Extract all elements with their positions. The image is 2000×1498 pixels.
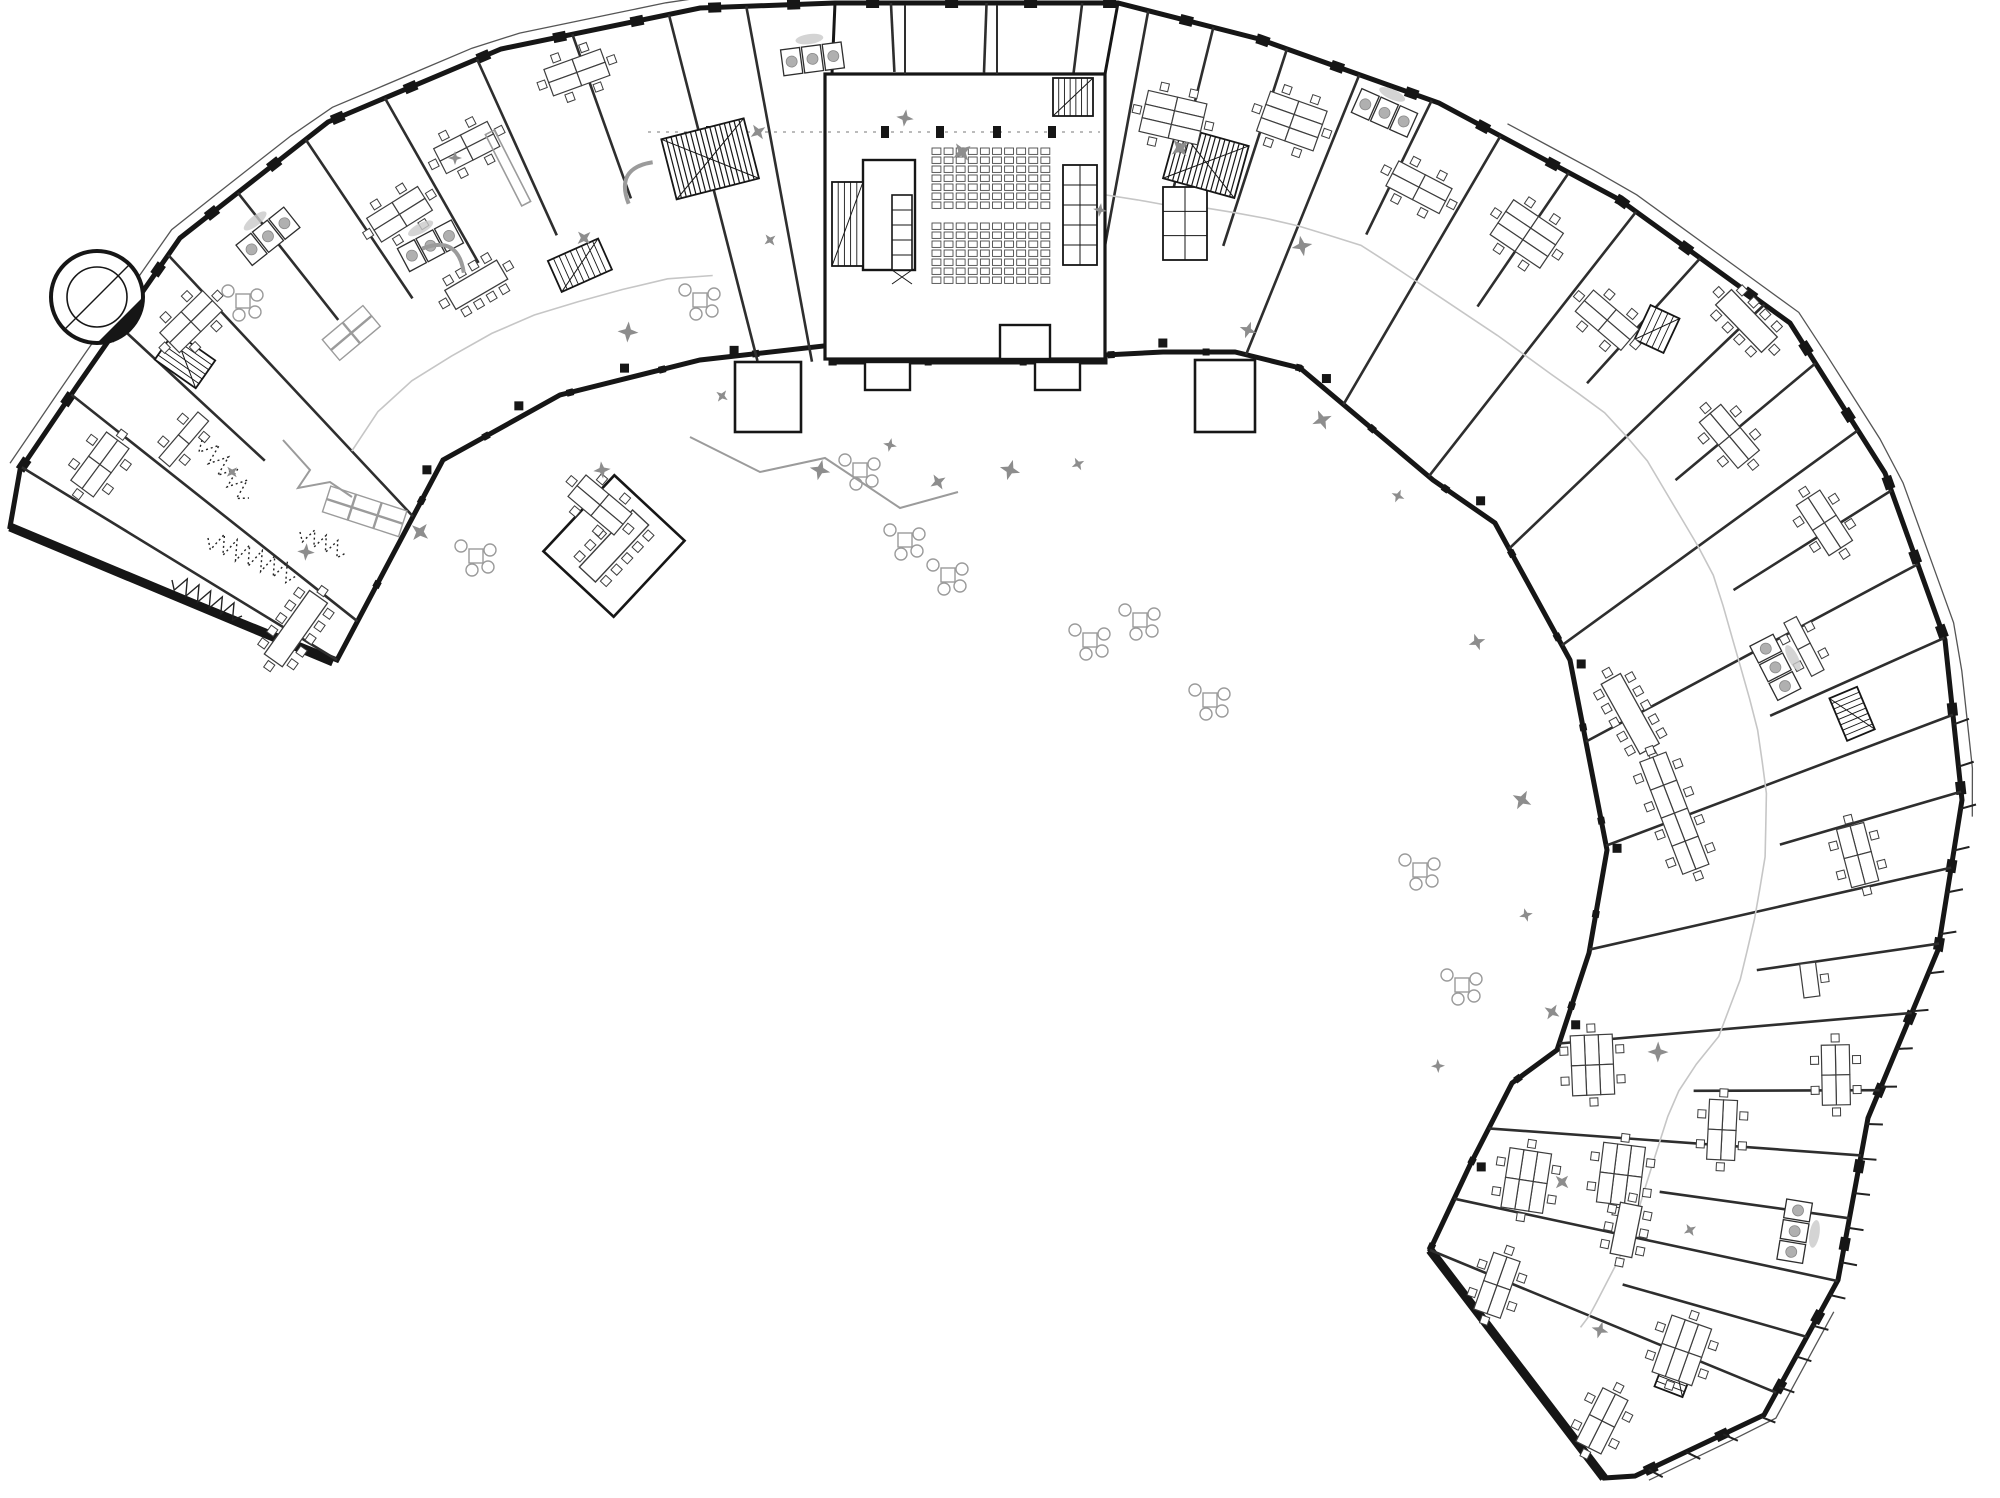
lounge-chairs [455, 540, 496, 576]
auditorium-seat [932, 232, 941, 238]
plant-icon [1517, 906, 1534, 923]
kitchen-unit [892, 195, 912, 284]
chair [1628, 1193, 1637, 1202]
sunshade-fin [1848, 1228, 1864, 1230]
auditorium-seat [968, 277, 977, 283]
auditorium-seat [1005, 184, 1014, 190]
column [422, 465, 431, 474]
chair [1587, 1182, 1596, 1191]
desk [1722, 1100, 1737, 1131]
auditorium-seat [1017, 223, 1026, 229]
auditorium-seat [1041, 268, 1050, 274]
auditorium-seat [1041, 241, 1050, 247]
auditorium-seat [968, 223, 977, 229]
auditorium-seat [1005, 232, 1014, 238]
auditorium-seat [944, 202, 953, 208]
floor-plan-page [0, 0, 2000, 1498]
auditorium-seat [993, 175, 1002, 181]
auditorium-seat [1017, 157, 1026, 163]
chair [1561, 1077, 1569, 1085]
auditorium-seat [968, 157, 977, 163]
auditorium-seat [944, 184, 953, 190]
round-chair [1080, 648, 1092, 660]
annex-stair-room [735, 362, 801, 432]
auditorium-seat [1005, 148, 1014, 154]
round-chair [1119, 604, 1131, 616]
auditorium-seat [1041, 259, 1050, 265]
auditorium-seat [956, 241, 965, 247]
auditorium-seat [956, 184, 965, 190]
auditorium-seat [1029, 184, 1038, 190]
auditorium-seat [932, 193, 941, 199]
column [1322, 374, 1331, 383]
round-chair [482, 561, 494, 573]
auditorium-seat [993, 277, 1002, 283]
sunshade-fin [1686, 1452, 1700, 1459]
plant-icon [1508, 786, 1536, 814]
auditorium-seat [1029, 223, 1038, 229]
auditorium-seat [944, 241, 953, 247]
round-chair [1452, 993, 1464, 1005]
auditorium-seat [956, 268, 965, 274]
chair [1204, 121, 1214, 131]
round-chair [1426, 875, 1438, 887]
chair [1547, 1195, 1556, 1204]
chair [1716, 1163, 1724, 1171]
desk [1721, 1130, 1736, 1161]
desk [1822, 1075, 1837, 1105]
auditorium-seat [1029, 250, 1038, 256]
auditorium-seat [1017, 184, 1026, 190]
auditorium-seat [1017, 241, 1026, 247]
auditorium-seat [1041, 232, 1050, 238]
chair [1642, 1188, 1651, 1197]
chair [1189, 89, 1199, 99]
auditorium-seat [1017, 202, 1026, 208]
auditorium-seat [1005, 193, 1014, 199]
desk [1707, 1129, 1722, 1160]
auditorium-seat [1041, 166, 1050, 172]
auditorium-seat [1029, 277, 1038, 283]
kitchen-counter [892, 195, 912, 270]
auditorium-seat [1029, 157, 1038, 163]
chair [1698, 1110, 1706, 1118]
auditorium-seat [932, 277, 941, 283]
column [1476, 496, 1485, 505]
sunshade-fin [1897, 1048, 1913, 1049]
round-chair [1146, 625, 1158, 637]
column [1577, 659, 1586, 668]
round-chair [1189, 684, 1201, 696]
column [1571, 1020, 1580, 1029]
desk [1835, 1045, 1850, 1075]
auditorium-seat [944, 250, 953, 256]
desk [1708, 1099, 1723, 1130]
lounge-chairs [1119, 604, 1160, 640]
chair [1621, 1133, 1630, 1142]
auditorium-seat [993, 166, 1002, 172]
chair [1811, 1086, 1819, 1094]
chair [566, 476, 577, 487]
auditorium-seat [944, 232, 953, 238]
column [1477, 1162, 1486, 1171]
desk [1570, 1035, 1585, 1066]
auditorium-seat [1029, 175, 1038, 181]
lounge-chairs [1441, 969, 1482, 1005]
round-chair [954, 580, 966, 592]
auditorium-seat [944, 193, 953, 199]
auditorium-seat [1005, 241, 1014, 247]
inner-mullions [337, 345, 1607, 1250]
desk [1598, 1034, 1613, 1065]
desk [1821, 1045, 1836, 1075]
auditorium-seat [956, 157, 965, 163]
auditorium-seat [932, 259, 941, 265]
chair [1492, 1187, 1501, 1196]
chair [1639, 1229, 1648, 1238]
column [514, 401, 523, 410]
auditorium-seat [993, 184, 1002, 190]
round-chair [911, 545, 923, 557]
round-chair [866, 475, 878, 487]
sunshade-fin [1854, 1193, 1870, 1195]
round-chair [455, 540, 467, 552]
staircase [1053, 78, 1093, 116]
auditorium-seat [956, 250, 965, 256]
chair [1831, 1034, 1839, 1042]
chair [1720, 1089, 1728, 1097]
round-chair [884, 524, 896, 536]
auditorium-seat [944, 259, 953, 265]
round-chair [1148, 608, 1160, 620]
chair [1560, 1047, 1568, 1055]
side-table [1133, 613, 1147, 627]
round-chair [839, 454, 851, 466]
auditorium-seat [980, 223, 989, 229]
round-chair [484, 544, 496, 556]
guide-tick [993, 126, 1001, 138]
auditorium-seat [956, 193, 965, 199]
auditorium-seat [1005, 277, 1014, 283]
annex-rooms [543, 360, 1255, 617]
staircase [832, 182, 863, 266]
auditorium-seat [932, 202, 941, 208]
auditorium-seat [1029, 232, 1038, 238]
auditorium-seat [980, 241, 989, 247]
auditorium-seat [1029, 259, 1038, 265]
chair [1615, 1258, 1624, 1267]
chair [1617, 1075, 1625, 1083]
auditorium-seat [1017, 250, 1026, 256]
desk [1600, 1142, 1618, 1173]
auditorium-seat [932, 166, 941, 172]
auditorium-seat [1005, 259, 1014, 265]
auditorium-seat [1041, 250, 1050, 256]
round-chair [895, 548, 907, 560]
chair [258, 638, 269, 649]
auditorium-seat [932, 175, 941, 181]
round-chair [1218, 688, 1230, 700]
side-table [469, 549, 483, 563]
auditorium-seat [956, 166, 965, 172]
auditorium-seat [1041, 184, 1050, 190]
chair [1516, 1213, 1525, 1222]
side-table [1083, 633, 1097, 647]
auditorium-seat [932, 250, 941, 256]
chair [1132, 105, 1142, 115]
sunshade-fin [1913, 1010, 1929, 1011]
round-chair [938, 583, 950, 595]
plant-icon [1466, 631, 1488, 653]
side-table [1455, 978, 1469, 992]
auditorium-seat [980, 157, 989, 163]
chair [264, 660, 275, 671]
chair [1738, 1142, 1746, 1150]
auditorium-seat [932, 268, 941, 274]
chair [1616, 1045, 1624, 1053]
auditorium-seat [1041, 193, 1050, 199]
lounge-chairs [1399, 854, 1440, 890]
guide-tick [936, 126, 944, 138]
vestibule-room [1000, 325, 1050, 359]
auditorium-seat [993, 157, 1002, 163]
auditorium-seat [932, 157, 941, 163]
side-table [1413, 863, 1427, 877]
round-chair [1200, 708, 1212, 720]
lounge-chairs [1189, 684, 1230, 720]
auditorium-seat [968, 259, 977, 265]
auditorium-seat [968, 148, 977, 154]
chair [1853, 1085, 1861, 1093]
auditorium-seat [993, 202, 1002, 208]
auditorium-seat [980, 184, 989, 190]
round-chair [1399, 854, 1411, 866]
round-chair [1096, 645, 1108, 657]
auditorium-seat [968, 250, 977, 256]
side-table [853, 463, 867, 477]
auditorium-seat [993, 268, 1002, 274]
desk [1599, 1064, 1614, 1095]
auditorium-seat [980, 250, 989, 256]
lounge-chairs [884, 524, 925, 560]
auditorium-seat [1017, 268, 1026, 274]
auditorium-seat [968, 202, 977, 208]
auditorium-seat [980, 259, 989, 265]
auditorium-seat [1005, 166, 1014, 172]
plant-icon [997, 457, 1023, 483]
side-table [898, 533, 912, 547]
auditorium-seat [980, 202, 989, 208]
chair [1496, 1157, 1505, 1166]
chair [1829, 841, 1839, 851]
plant-icon [1431, 1059, 1446, 1074]
auditorium-seat [968, 166, 977, 172]
auditorium-seat [1017, 232, 1026, 238]
plant-icon [712, 386, 732, 406]
auditorium-seat [1029, 193, 1038, 199]
auditorium-seat [968, 232, 977, 238]
auditorium-seat [980, 166, 989, 172]
chair [1862, 886, 1872, 896]
chair [1527, 1139, 1536, 1148]
auditorium-seat [1029, 202, 1038, 208]
auditorium-seat [980, 232, 989, 238]
auditorium-seat [1029, 241, 1038, 247]
plant-icon [926, 470, 950, 494]
chair [1643, 1211, 1652, 1220]
guide-tick [881, 126, 889, 138]
chair [1607, 1204, 1616, 1213]
auditorium-seat [1029, 268, 1038, 274]
auditorium-seat [968, 241, 977, 247]
auditorium-seat [968, 184, 977, 190]
auditorium-seat [993, 223, 1002, 229]
auditorium-seat [980, 193, 989, 199]
chair [1852, 1055, 1860, 1063]
round-chair [1441, 969, 1453, 981]
auditorium-seat [993, 193, 1002, 199]
chair [1810, 1056, 1818, 1064]
round-chair [1428, 858, 1440, 870]
chair [1843, 814, 1853, 824]
desk [1584, 1035, 1599, 1066]
chair [1696, 1140, 1704, 1148]
chair [1590, 1098, 1598, 1106]
desk [1571, 1065, 1586, 1096]
auditorium-seat [956, 277, 965, 283]
auditorium-seat [1005, 223, 1014, 229]
auditorium-seat [1041, 202, 1050, 208]
auditorium-seat [1041, 157, 1050, 163]
round-chair [466, 564, 478, 576]
auditorium-seat [968, 193, 977, 199]
auditorium-seat [1017, 259, 1026, 265]
chair [1820, 974, 1829, 983]
chair [1635, 1246, 1644, 1255]
desk [1585, 1065, 1600, 1096]
chair [1869, 830, 1879, 840]
column [1158, 339, 1167, 348]
auditorium-seat [968, 268, 977, 274]
chair [1600, 1239, 1609, 1248]
auditorium-seat [1005, 250, 1014, 256]
auditorium-seat [1005, 157, 1014, 163]
round-chair [956, 563, 968, 575]
auditorium-seat [968, 175, 977, 181]
auditorium-seat [932, 241, 941, 247]
desk [1836, 1075, 1851, 1105]
column [620, 364, 629, 373]
auditorium-seat [944, 166, 953, 172]
annex-stair-room [1195, 360, 1255, 432]
sunshade-fin [1841, 1262, 1857, 1265]
auditorium-seat [980, 148, 989, 154]
round-chair [1470, 973, 1482, 985]
plant-icon [1389, 487, 1407, 505]
auditorium-seat [932, 148, 941, 154]
column [1613, 844, 1622, 853]
side-table [1203, 693, 1217, 707]
auditorium-seat [1041, 277, 1050, 283]
lounge-chairs [927, 559, 968, 595]
chair [1646, 1159, 1655, 1168]
sunshade-fin [1860, 1159, 1876, 1160]
round-chair [1216, 705, 1228, 717]
spiral-stair-tower [51, 251, 143, 343]
round-chair [1098, 628, 1110, 640]
auditorium-seat [1017, 166, 1026, 172]
side-table [941, 568, 955, 582]
auditorium-seat [980, 268, 989, 274]
chair [1877, 859, 1887, 869]
column [730, 346, 739, 355]
chair [287, 659, 298, 670]
auditorium-seat [993, 148, 1002, 154]
round-chair [1468, 990, 1480, 1002]
vestibule-room [1035, 362, 1080, 390]
lounge-chairs [1069, 624, 1110, 660]
auditorium-seat [944, 148, 953, 154]
guide-tick [1048, 126, 1056, 138]
chair [1604, 1222, 1613, 1231]
auditorium-seat [944, 157, 953, 163]
plant-icon [1308, 406, 1336, 434]
desk [1596, 1172, 1614, 1203]
auditorium-seat [1029, 166, 1038, 172]
auditorium-seat [944, 223, 953, 229]
round-chair [1410, 878, 1422, 890]
chair [1587, 1024, 1595, 1032]
auditorium-seat [944, 268, 953, 274]
auditorium-seat [1041, 148, 1050, 154]
auditorium-seat [1017, 148, 1026, 154]
chair [1160, 82, 1170, 92]
chair [1147, 137, 1157, 147]
auditorium-seat [993, 250, 1002, 256]
auditorium-seat [1005, 175, 1014, 181]
auditorium-seat [1041, 175, 1050, 181]
sunshade-fin [1867, 1124, 1883, 1125]
auditorium-seat [1029, 148, 1038, 154]
auditorium-seat [956, 232, 965, 238]
floor-plan-canvas [0, 0, 2000, 1498]
auditorium-seat [956, 223, 965, 229]
round-chair [927, 559, 939, 571]
chair [1740, 1112, 1748, 1120]
auditorium-seat [932, 184, 941, 190]
auditorium-seat [1017, 277, 1026, 283]
chair [1552, 1165, 1561, 1174]
vestibule-room [865, 362, 910, 390]
chair [1836, 870, 1846, 880]
auditorium-seat [1017, 193, 1026, 199]
chair [1832, 1108, 1840, 1116]
auditorium-seat [1005, 202, 1014, 208]
auditorium-seat [993, 241, 1002, 247]
auditorium-seat [932, 223, 941, 229]
auditorium-seat [980, 277, 989, 283]
round-chair [913, 528, 925, 540]
auditorium-seat [1017, 175, 1026, 181]
auditorium-seat [944, 277, 953, 283]
auditorium-seat [944, 175, 953, 181]
sunshade-fin [1830, 1295, 1846, 1299]
auditorium-seat [993, 259, 1002, 265]
auditorium-seat [956, 202, 965, 208]
round-chair [1069, 624, 1081, 636]
auditorium-seat [993, 232, 1002, 238]
auditorium-seat [1041, 223, 1050, 229]
